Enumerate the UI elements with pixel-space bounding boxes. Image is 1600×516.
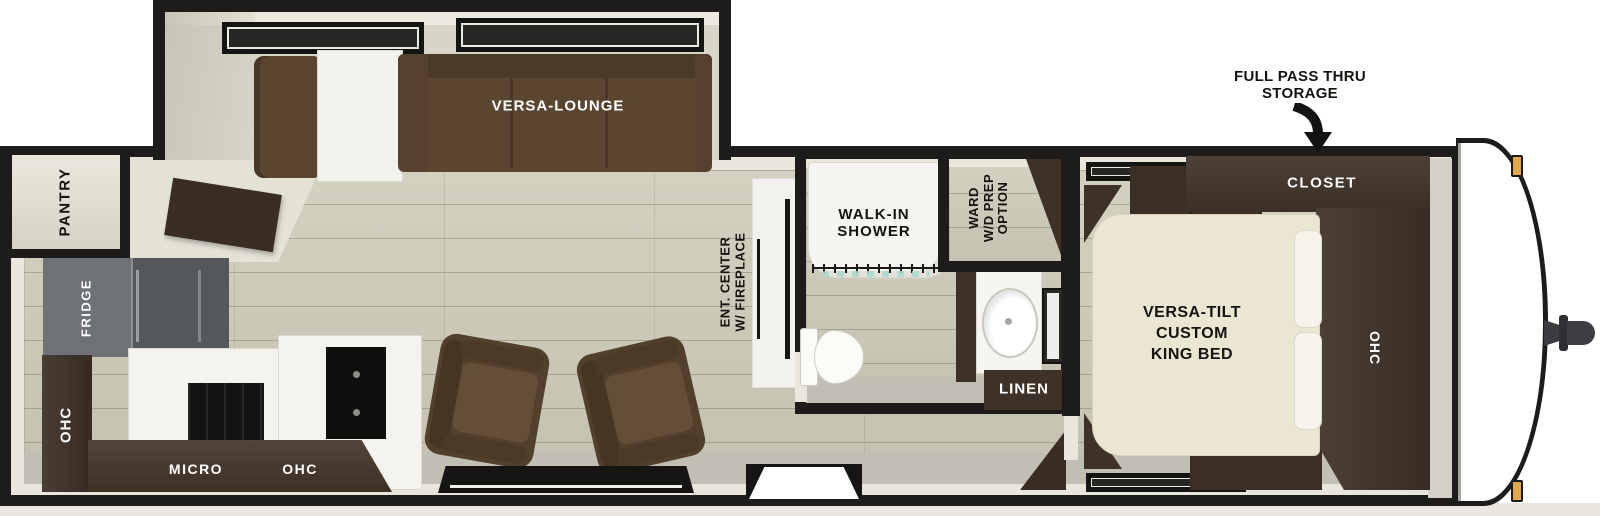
sofa-cushion-divider2 xyxy=(605,78,608,168)
wardrobe-label: WARD W/D PREP OPTION xyxy=(967,174,1011,242)
storage-annotation-line1: FULL PASS THRU xyxy=(1190,68,1410,85)
bed-label-line2: CUSTOM xyxy=(1143,324,1241,345)
tv xyxy=(785,199,790,359)
closet-label: CLOSET xyxy=(1287,176,1357,193)
ent-center-label: ENT. CENTER W/ FIREPLACE xyxy=(718,232,747,331)
bed-label: VERSA-TILT CUSTOM KING BED xyxy=(1143,303,1241,365)
shower-label-line1: WALK-IN xyxy=(837,207,911,224)
dinette-table xyxy=(317,50,403,182)
sink-knob-bottom xyxy=(353,409,360,416)
sink-drain xyxy=(1005,318,1012,325)
wardrobe-label-line1: WARD xyxy=(967,174,982,242)
hitch-ball-mount xyxy=(1567,321,1595,345)
fridge-handle-right xyxy=(198,270,201,342)
vanity-side-panel xyxy=(956,270,976,382)
floorplan-canvas: PANTRY FRIDGE OHC MICRO OHC xyxy=(0,0,1600,516)
fridge-doors xyxy=(131,258,229,357)
bathroom-mirror xyxy=(1042,288,1064,364)
bed-pillow-top xyxy=(1294,230,1322,328)
kitchen-ohc-side-label: OHC xyxy=(59,407,76,443)
sofa-arm-left xyxy=(398,54,428,172)
slideout-window-right-pane xyxy=(461,23,699,47)
entry-door xyxy=(746,464,862,499)
shower-curtain-rod xyxy=(812,267,944,269)
fridge xyxy=(43,258,227,357)
micro-label: MICRO xyxy=(169,462,223,478)
storage-annotation-line2: STORAGE xyxy=(1190,85,1410,102)
armchair-right-seat xyxy=(604,360,695,446)
bed-label-line1: VERSA-TILT xyxy=(1143,303,1241,324)
mirror-glass xyxy=(1047,293,1059,359)
bedroom-right-lining xyxy=(1428,158,1452,498)
sink-knob-top xyxy=(353,371,360,378)
bedroom-door-stub xyxy=(1064,416,1078,460)
fridge-label: FRIDGE xyxy=(80,279,95,337)
front-cap-body xyxy=(1458,143,1543,501)
sofa-cushion-divider1 xyxy=(510,78,513,168)
ent-center-label-line1: ENT. CENTER xyxy=(718,232,733,331)
shower-glass-accent xyxy=(822,271,930,277)
storage-arrow-icon xyxy=(1288,103,1336,155)
fireplace-line xyxy=(757,239,760,339)
entry-door-panel xyxy=(749,467,859,499)
pantry-label: PANTRY xyxy=(58,168,75,237)
dinette-bench xyxy=(254,56,318,178)
bedroom-left-wall xyxy=(1062,148,1080,416)
kitchen-ohc-bottom xyxy=(88,440,392,492)
kitchen-ohc-bottom-label: OHC xyxy=(282,462,318,478)
living-window xyxy=(438,466,694,493)
shower-label-line2: SHOWER xyxy=(837,224,911,241)
entertainment-center xyxy=(752,178,800,388)
stove-cooktop xyxy=(188,383,264,443)
front-cap xyxy=(1456,138,1548,506)
versa-lounge-label: VERSA-LOUNGE xyxy=(492,99,625,116)
armchair-left-seat xyxy=(451,361,539,443)
sofa-arm-right xyxy=(695,54,712,172)
slideout-window-right xyxy=(456,18,704,52)
bedroom-ohc-label: OHC xyxy=(1366,331,1382,365)
linen-label: LINEN xyxy=(999,382,1049,399)
bed-pillow-bottom xyxy=(1294,332,1322,430)
shower-label: WALK-IN SHOWER xyxy=(837,207,911,241)
marker-light-top xyxy=(1511,155,1523,177)
wardrobe-label-line3: OPTION xyxy=(996,174,1011,242)
living-window-sill xyxy=(450,485,682,488)
marker-light-bottom xyxy=(1511,480,1523,502)
bed-label-line3: KING BED xyxy=(1143,344,1241,365)
slideout-window-left-pane xyxy=(227,27,419,49)
fridge-handle-left xyxy=(136,270,139,342)
sofa-back xyxy=(398,54,712,78)
storage-annotation: FULL PASS THRU STORAGE xyxy=(1190,68,1410,103)
armchair-left xyxy=(422,331,552,470)
wardrobe-label-line2: W/D PREP xyxy=(982,174,997,242)
sink-cabinet xyxy=(326,347,386,439)
ent-center-label-line2: W/ FIREPLACE xyxy=(733,232,748,331)
